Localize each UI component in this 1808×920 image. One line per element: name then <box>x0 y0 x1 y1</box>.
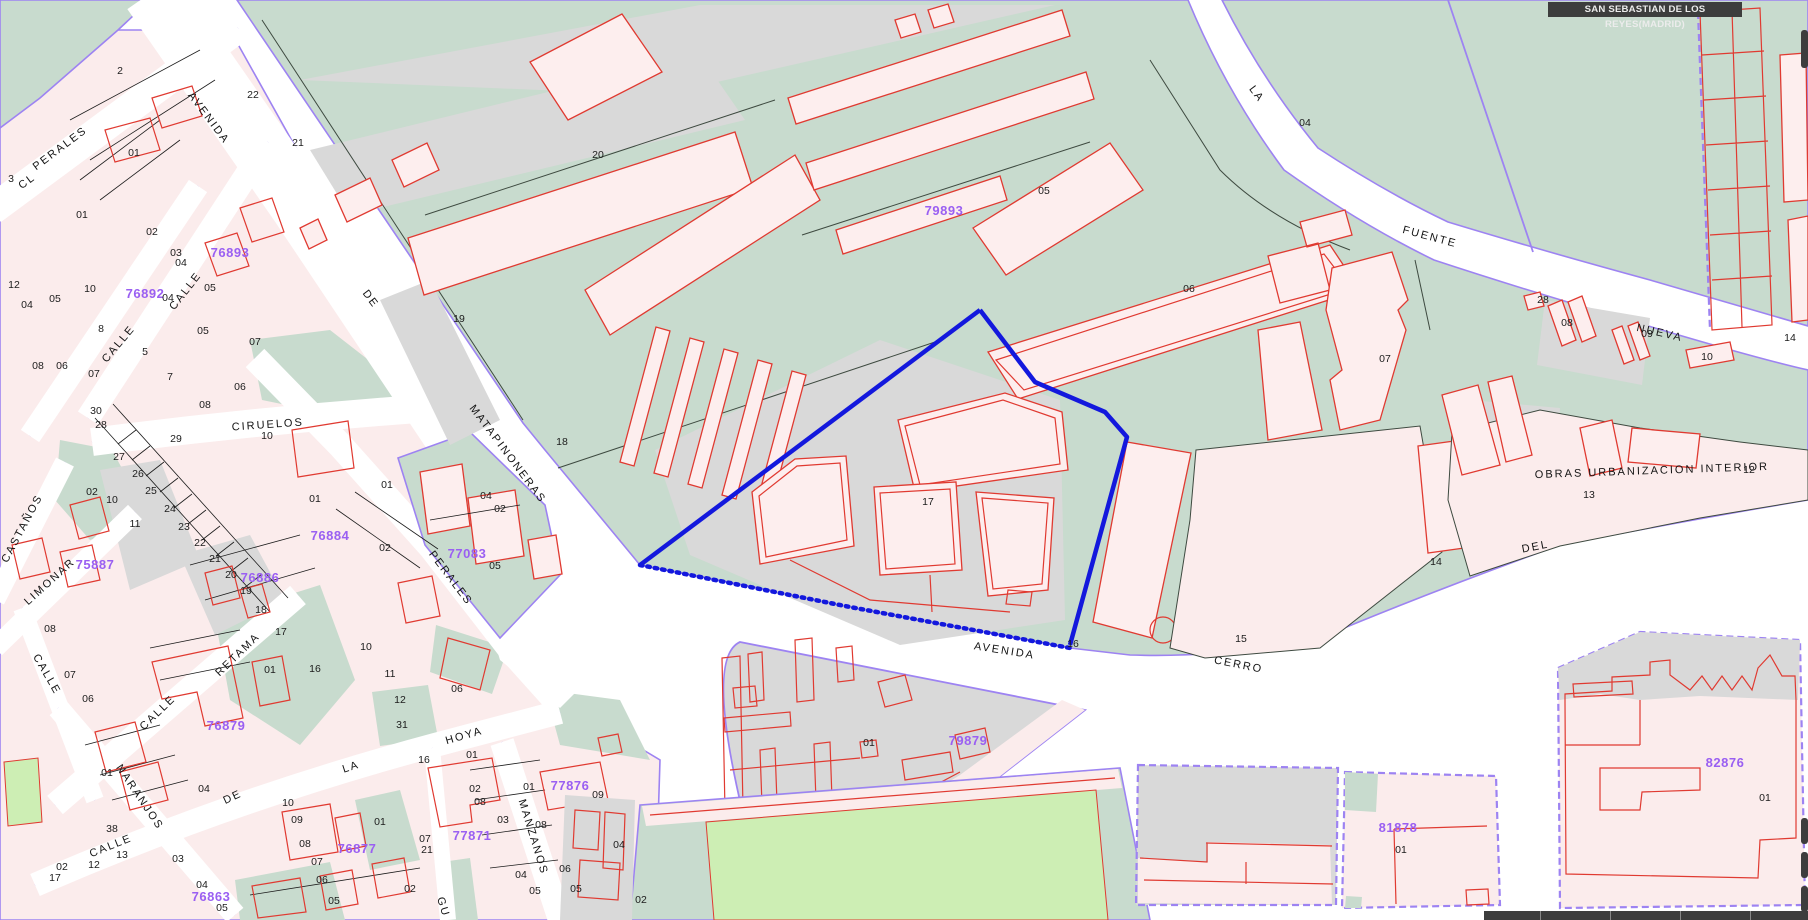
parcel-number: 13 <box>1583 489 1595 501</box>
parcel-number: 08 <box>299 838 311 850</box>
parcel-number: 06 <box>316 874 328 886</box>
parcel-number: 04 <box>175 257 187 269</box>
parcel-number: 06 <box>1183 283 1195 295</box>
parcel-number: 10 <box>84 283 96 295</box>
parcel-number: 7 <box>167 371 173 383</box>
parcel-number: 05 <box>529 885 541 897</box>
parcel-number: 03 <box>497 814 509 826</box>
parcel-number: 09 <box>291 814 303 826</box>
block-code: 77083 <box>448 546 487 561</box>
parcel-number: 04 <box>515 869 527 881</box>
parcel-number: 22 <box>247 89 259 101</box>
block-code: 77871 <box>453 828 492 843</box>
parcel-number: 06 <box>234 381 246 393</box>
parcel-number: 17 <box>49 872 61 884</box>
parcel-number: 02 <box>635 894 647 906</box>
parcel-number: 28 <box>1537 294 1549 306</box>
parcel-number: 27 <box>113 451 125 463</box>
parcel-number: 20 <box>592 149 604 161</box>
parcel-number: 12 <box>394 694 406 706</box>
parcel-number: 01 <box>863 737 875 749</box>
parcel-number: 01 <box>128 147 140 159</box>
parcel-number: 16 <box>1067 638 1079 650</box>
parcel-number: 02 <box>56 861 68 873</box>
map-control-button[interactable] <box>1801 852 1808 878</box>
municipality-title: SAN SEBASTIAN DE LOS REYES(MADRID) <box>1548 2 1742 17</box>
parcel-number: 02 <box>494 503 506 515</box>
parcel-number: 01 <box>264 664 276 676</box>
parcel-number: 05 <box>204 282 216 294</box>
block-code: 82876 <box>1706 755 1745 770</box>
parcel-number: 07 <box>249 336 261 348</box>
parcel-number: 02 <box>469 783 481 795</box>
parcel-number: 01 <box>309 493 321 505</box>
parcel-number: 01 <box>1395 844 1407 856</box>
map-control-button[interactable] <box>1801 30 1808 68</box>
parcel-number: 16 <box>309 663 321 675</box>
parcel-number: 04 <box>21 299 33 311</box>
parcel-number: 07 <box>88 368 100 380</box>
parcel-number: 23 <box>178 521 190 533</box>
block-code: 76877 <box>338 841 377 856</box>
parcel-number: 08 <box>1561 317 1573 329</box>
parcel-number: 04 <box>613 839 625 851</box>
parcel-number: 31 <box>396 719 408 731</box>
block-code: 81878 <box>1379 820 1418 835</box>
block-code: 79893 <box>925 203 964 218</box>
parcel-number: 19 <box>453 313 465 325</box>
parcel-number: 16 <box>418 754 430 766</box>
parcel-number: 25 <box>145 485 157 497</box>
block-code: 76893 <box>211 245 250 260</box>
parcel-number: 02 <box>379 542 391 554</box>
map-control-button[interactable] <box>1801 818 1808 844</box>
parcel-number: 21 <box>292 137 304 149</box>
parcel-number: 05 <box>570 883 582 895</box>
parcel-number: 24 <box>164 503 176 515</box>
parcel-number: 10 <box>261 430 273 442</box>
parcel-number: 02 <box>86 486 98 498</box>
parcel-number: 17 <box>922 496 934 508</box>
block-code: 76886 <box>241 570 280 585</box>
block-code: 76879 <box>207 718 246 733</box>
parcel-number: 09 <box>1641 328 1653 340</box>
parcel-number: 19 <box>240 585 252 597</box>
parcel-number: 01 <box>1759 792 1771 804</box>
parcel-number: 04 <box>162 292 174 304</box>
parcel-number: 07 <box>311 856 323 868</box>
parcel-number: 08 <box>474 796 486 808</box>
block-code: 76884 <box>311 528 350 543</box>
parcel-number: 12 <box>8 279 20 291</box>
parcel-number: 04 <box>198 783 210 795</box>
parcel-number: 05 <box>489 560 501 572</box>
parcel-number: 08 <box>199 399 211 411</box>
parcel-number: 08 <box>32 360 44 372</box>
parcel-number: 10 <box>282 797 294 809</box>
parcel-number: 20 <box>225 569 237 581</box>
parcel-number: 18 <box>556 436 568 448</box>
parcel-number: 10 <box>106 494 118 506</box>
parcel-number: 12 <box>88 859 100 871</box>
block-code: 76892 <box>126 286 165 301</box>
parcel-number: 02 <box>404 883 416 895</box>
block-code: 77876 <box>551 778 590 793</box>
parcel-number: 06 <box>451 683 463 695</box>
parcel-number: 05 <box>1038 185 1050 197</box>
parcel-number: 01 <box>381 479 393 491</box>
parcel-number: 5 <box>142 346 148 358</box>
parcel-number: 05 <box>216 902 228 914</box>
parcel-number: 05 <box>328 895 340 907</box>
parcel-number: 21 <box>209 553 221 565</box>
parcel-number: 17 <box>275 626 287 638</box>
parcel-number: 06 <box>56 360 68 372</box>
parcel-number: 10 <box>360 641 372 653</box>
parcel-number: 01 <box>466 749 478 761</box>
parcel-number: 18 <box>255 604 267 616</box>
parcel-number: 08 <box>535 819 547 831</box>
parcel-number: 01 <box>76 209 88 221</box>
parcel-number: 04 <box>1299 117 1311 129</box>
parcel-number: 30 <box>90 405 102 417</box>
parcel-number: 15 <box>1235 633 1247 645</box>
parcel-number: 8 <box>98 323 104 335</box>
parcel-number: 29 <box>170 433 182 445</box>
parcel-number: 08 <box>44 623 56 635</box>
parcel-number: 10 <box>1701 351 1713 363</box>
map-control-button[interactable] <box>1801 886 1808 912</box>
parcel-number: 11 <box>385 668 396 680</box>
parcel-number: 01 <box>523 781 535 793</box>
parcel-number: 04 <box>480 490 492 502</box>
parcel-number: 28 <box>95 419 107 431</box>
block-code: 79879 <box>949 733 988 748</box>
bottom-toolbar[interactable] <box>1484 911 1808 920</box>
parcel-number: 01 <box>101 767 113 779</box>
parcel-number: 3 <box>8 173 14 185</box>
parcel-number: 14 <box>1430 556 1442 568</box>
parcel-number: 2 <box>117 65 123 77</box>
block-code: 75887 <box>76 557 115 572</box>
parcel-number: 05 <box>197 325 209 337</box>
parcel-number: 06 <box>559 863 571 875</box>
parcel-number: 02 <box>146 226 158 238</box>
parcel-number: 13 <box>116 849 128 861</box>
parcel-number: 07 <box>1379 353 1391 365</box>
parcel-number: 26 <box>132 468 144 480</box>
parcel-number: 11 <box>130 518 141 530</box>
parcel-number: 03 <box>172 853 184 865</box>
parcel-number: 05 <box>49 293 61 305</box>
parcel-number: 06 <box>82 693 94 705</box>
parcel-number: 04 <box>196 879 208 891</box>
parcel-number: 12 <box>1743 464 1755 476</box>
map-canvas[interactable]: AVENIDADEMATAPINONERASCLPERALESCALLECALL… <box>0 0 1808 920</box>
parcel-number: 07 <box>64 669 76 681</box>
parcel-number: 09 <box>592 789 604 801</box>
parcel-number: 01 <box>374 816 386 828</box>
parcel-number: 14 <box>1784 332 1796 344</box>
parcel-number: 38 <box>106 823 118 835</box>
parcel-number: 22 <box>194 537 206 549</box>
parcel-number: 21 <box>421 844 433 856</box>
